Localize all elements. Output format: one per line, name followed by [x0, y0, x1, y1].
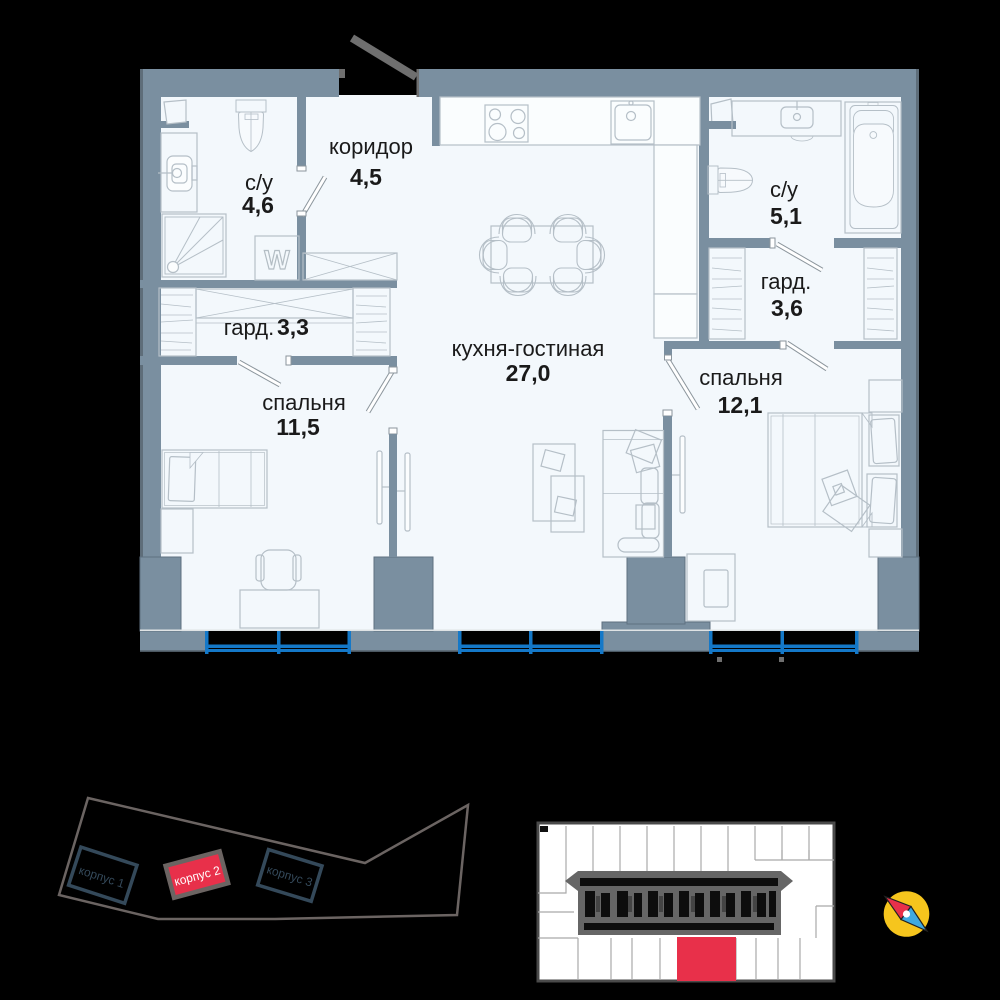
- svg-text:4,5: 4,5: [350, 164, 382, 190]
- svg-text:коридор: коридор: [329, 134, 413, 159]
- svg-text:4,6: 4,6: [242, 192, 274, 218]
- svg-text:спальня: спальня: [699, 365, 783, 390]
- svg-text:3,3: 3,3: [277, 314, 309, 340]
- svg-text:спальня: спальня: [262, 390, 346, 415]
- svg-text:5,1: 5,1: [770, 203, 802, 229]
- svg-text:W: W: [264, 245, 290, 275]
- svg-text:11,5: 11,5: [276, 414, 320, 440]
- svg-text:3,6: 3,6: [771, 295, 803, 321]
- svg-text:12,1: 12,1: [718, 392, 763, 418]
- svg-text:27,0: 27,0: [506, 360, 551, 386]
- svg-text:с/у: с/у: [770, 177, 798, 202]
- svg-text:гард.: гард.: [761, 269, 811, 294]
- svg-text:кухня-гостиная: кухня-гостиная: [452, 336, 605, 361]
- svg-text:гард.: гард.: [224, 315, 274, 340]
